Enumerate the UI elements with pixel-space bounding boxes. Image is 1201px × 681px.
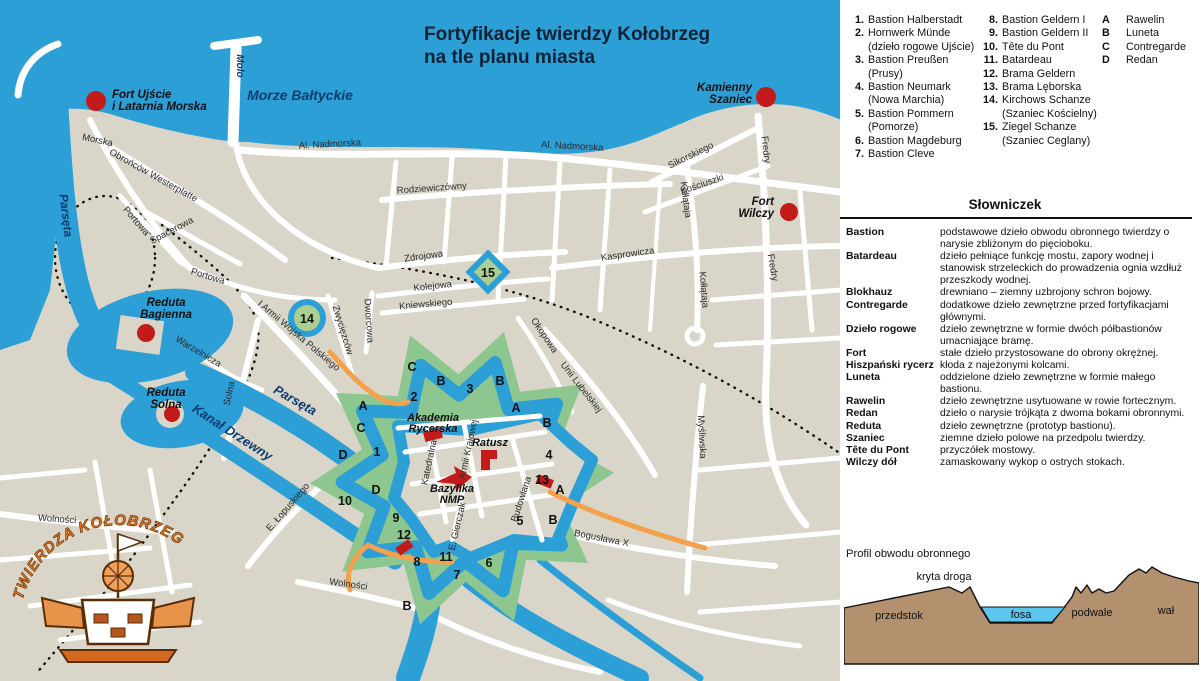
glossary-definition: drewniano – ziemny uzbrojony schron bojo…: [940, 287, 1196, 299]
legend-item-number: 8.: [980, 14, 1002, 27]
fort-red-dot: [756, 87, 776, 107]
legend-item: 9.Bastion Geldern II: [980, 27, 1098, 40]
glossary-definition: zamaskowany wykop o ostrych stokach.: [940, 457, 1196, 469]
legend-item-text: Bastion Cleve: [868, 148, 935, 161]
legend-item: 8.Bastion Geldern I: [980, 14, 1098, 27]
glossary-definition: dzieło zewnętrzne usytuowane w rowie for…: [940, 396, 1196, 408]
glossary-rule: [840, 217, 1192, 219]
legend-item-text: Kirchows Schanze(Szaniec Kościelny): [1002, 94, 1097, 121]
glossary-title: Słowniczek: [880, 197, 1130, 212]
profile-label-przedstok: przedstok: [875, 610, 923, 622]
legend-item-text: Bastion Preußen(Prusy): [868, 54, 948, 81]
glossary-term: Batardeau: [846, 251, 940, 287]
legend-item-number: 14.: [980, 94, 1002, 121]
marker-D: D: [338, 448, 347, 462]
marker-4: 4: [546, 448, 553, 462]
glossary-definition: przyczółek mostowy.: [940, 445, 1196, 457]
legend-item-text: Rawelin: [1126, 14, 1164, 27]
marker-B: B: [402, 599, 411, 613]
legend-item: 11.Batardeau: [980, 54, 1098, 67]
legend-column-3: ARawelinBLunetaCContregardeDRedan: [1102, 14, 1198, 68]
legend-item-number: 15.: [980, 121, 1002, 148]
city-site-label: Ratusz: [472, 437, 509, 449]
glossary-term: Szaniec: [846, 433, 940, 445]
legend-item: 12.Brama Geldern: [980, 68, 1098, 81]
marker-6: 6: [486, 556, 493, 570]
legend-item-number: D: [1102, 54, 1126, 67]
legend-item: 3.Bastion Preußen(Prusy): [846, 54, 978, 81]
rampart-profile-diagram: kryta droga przedstok fosa podwale wał: [844, 566, 1199, 678]
marker-A: A: [358, 399, 367, 413]
fort-site-label: Szaniec: [709, 94, 752, 106]
glossary-term: Blokhauz: [846, 287, 940, 299]
profile-label-podwale: podwale: [1072, 607, 1113, 619]
glossary-term: Redan: [846, 408, 940, 420]
marker-10: 10: [338, 494, 352, 508]
glossary-term: Luneta: [846, 372, 940, 396]
legend-item: DRedan: [1102, 54, 1198, 67]
legend-item-number: 3.: [846, 54, 868, 81]
fort-site-label: Reduta: [147, 387, 187, 399]
fort-site-label: i Latarnia Morska: [112, 101, 207, 113]
legend-item-text: Brama Geldern: [1002, 68, 1075, 81]
legend-item: BLuneta: [1102, 27, 1198, 40]
glossary-entry: Dzieło rogowedzieło zewnętrzne w formie …: [846, 324, 1196, 348]
legend-item-number: 4.: [846, 81, 868, 108]
legend-item: 4.Bastion Neumark(Nowa Marchia): [846, 81, 978, 108]
legend-item-text: Brama Lęborska: [1002, 81, 1081, 94]
marker-11: 11: [439, 550, 452, 564]
glossary-term: Contregarde: [846, 300, 940, 324]
glossary-entry: Tête du Pontprzyczółek mostowy.: [846, 445, 1196, 457]
glossary-term: Dzieło rogowe: [846, 324, 940, 348]
legend-item-text: Tête du Pont: [1002, 41, 1064, 54]
legend-item-text: Ziegel Schanze(Szaniec Ceglany): [1002, 121, 1090, 148]
marker-A: A: [511, 401, 520, 415]
legend-item-number: 11.: [980, 54, 1002, 67]
glossary-term: Wilczy dół: [846, 457, 940, 469]
legend-item: 15.Ziegel Schanze(Szaniec Ceglany): [980, 121, 1098, 148]
legend-item-number: 2.: [846, 27, 868, 54]
legend-item-number: 5.: [846, 108, 868, 135]
glossary-entry: Batardeaudzieło pełniące funkcję mostu, …: [846, 251, 1196, 287]
legend-column-2: 8.Bastion Geldern I9.Bastion Geldern II1…: [980, 14, 1098, 148]
profile-label-wal: wał: [1157, 605, 1175, 617]
glossary-entry: Blokhauzdrewniano – ziemny uzbrojony sch…: [846, 287, 1196, 299]
glossary-entry: Lunetaoddzielone dzieło zewnętrzne w for…: [846, 372, 1196, 396]
profile-title: Profil obwodu obronnego: [846, 548, 970, 560]
fort-site-label: Kamienny: [697, 82, 753, 94]
legend-item-number: B: [1102, 27, 1126, 40]
fort-red-dot: [137, 324, 155, 342]
glossary-term: Bastion: [846, 227, 940, 251]
glossary-definition: podstawowe dzieło obwodu obronnego twier…: [940, 227, 1196, 251]
glossary-term: Rawelin: [846, 396, 940, 408]
glossary-term: Hiszpański rycerz: [846, 360, 940, 372]
legend-column-1: 1.Bastion Halberstadt2.Hornwerk Münde(dz…: [846, 14, 978, 161]
glossary-definition: stałe dzieło przystosowane do obrony okr…: [940, 348, 1196, 360]
glossary-entry: Contregardedodatkowe dzieło zewnętrzne p…: [846, 300, 1196, 324]
glossary-entry: Rawelindzieło zewnętrzne usytuowane w ro…: [846, 396, 1196, 408]
glossary-entry: Redutadzieło zewnętrzne (prototyp bastio…: [846, 421, 1196, 433]
fort-site-label: Fort: [752, 196, 776, 208]
glossary-entry: Redandzieło o narysie trójkąta z dwoma b…: [846, 408, 1196, 420]
glossary-definition: ziemne dzieło polowe na przedpolu twierd…: [940, 433, 1196, 445]
glossary-definition: dzieło pełniące funkcję mostu, zapory wo…: [940, 251, 1196, 287]
marker-B: B: [436, 374, 445, 388]
water-label: Molo: [234, 54, 245, 77]
marker-1: 1: [374, 445, 381, 459]
legend-item-number: 6.: [846, 135, 868, 148]
marker-C: C: [407, 360, 416, 374]
marker-13: 13: [535, 473, 549, 487]
marker-8: 8: [414, 555, 421, 569]
marker-B: B: [548, 513, 557, 527]
fort-red-dot: [86, 91, 106, 111]
marker-D: D: [371, 483, 380, 497]
fort-site-label: Reduta: [147, 297, 187, 309]
legend-item: 13.Brama Lęborska: [980, 81, 1098, 94]
legend-item-number: 9.: [980, 27, 1002, 40]
fort-site-label: Fort Ujście: [112, 89, 172, 101]
legend-item: 6.Bastion Magdeburg: [846, 135, 978, 148]
legend-item-text: Bastion Geldern II: [1002, 27, 1088, 40]
city-site-label: Rycerska: [409, 423, 458, 435]
glossary-definition: dzieło zewnętrzne (prototyp bastionu).: [940, 421, 1196, 433]
glossary-entry: Wilczy dółzamaskowany wykop o ostrych st…: [846, 457, 1196, 469]
glossary-definition: kłoda z najeżonymi kolcami.: [940, 360, 1196, 372]
fort-site-label: Bagienna: [140, 309, 192, 321]
glossary-term: Reduta: [846, 421, 940, 433]
marker-7: 7: [454, 568, 461, 582]
glossary-entry: Szaniecziemne dzieło polowe na przedpolu…: [846, 433, 1196, 445]
map-title-line1: Fortyfikacje twierdzy Kołobrzeg: [424, 24, 710, 45]
marker-9: 9: [393, 511, 400, 525]
marker-C: C: [356, 421, 365, 435]
street-label: Myśliwska: [695, 415, 708, 460]
legend-item: 14.Kirchows Schanze(Szaniec Kościelny): [980, 94, 1098, 121]
legend-item-text: Batardeau: [1002, 54, 1052, 67]
kolobrzeg-fortress-map-page: Fort Ujściei Latarnia MorskaKamiennySzan…: [0, 0, 1201, 681]
glossary-list: Bastionpodstawowe dzieło obwodu obronneg…: [846, 227, 1196, 469]
marker-A: A: [555, 483, 564, 497]
marker-2: 2: [411, 390, 418, 404]
marker-B: B: [542, 416, 551, 430]
legend-item-text: Contregarde: [1126, 41, 1186, 54]
fort-site-label: Wilczy: [738, 208, 774, 220]
water-label: Morze Bałtyckie: [247, 87, 353, 103]
legend-item-text: Hornwerk Münde(dzieło rogowe Ujście): [868, 27, 974, 54]
legend-item-text: Bastion Neumark(Nowa Marchia): [868, 81, 951, 108]
legend-item: 7.Bastion Cleve: [846, 148, 978, 161]
marker-3: 3: [467, 382, 474, 396]
glossary-definition: dzieło zewnętrzne w formie dwóch półbast…: [940, 324, 1196, 348]
fort-site-label: Solna: [150, 399, 182, 411]
marker-15: 15: [481, 266, 495, 280]
legend-item-text: Redan: [1126, 54, 1158, 67]
glossary-entry: Fortstałe dzieło przystosowane do obrony…: [846, 348, 1196, 360]
legend-item-text: Bastion Halberstadt: [868, 14, 962, 27]
profile-label-fosa: fosa: [1011, 609, 1033, 621]
glossary-definition: oddzielone dzieło zewnętrzne w formie ma…: [940, 372, 1196, 396]
legend-item: 5.Bastion Pommern(Pomorze): [846, 108, 978, 135]
legend-item: 1.Bastion Halberstadt: [846, 14, 978, 27]
legend-item-number: 10.: [980, 41, 1002, 54]
legend-item-text: Luneta: [1126, 27, 1159, 40]
marker-12: 12: [397, 528, 411, 542]
glossary-term: Tête du Pont: [846, 445, 940, 457]
legend-item-text: Bastion Geldern I: [1002, 14, 1085, 27]
legend-item-text: Bastion Pommern(Pomorze): [868, 108, 954, 135]
marker-5: 5: [517, 514, 524, 528]
legend-item-number: 13.: [980, 81, 1002, 94]
marker-14: 14: [300, 312, 314, 326]
legend-item: 10.Tête du Pont: [980, 41, 1098, 54]
legend-item: 2.Hornwerk Münde(dzieło rogowe Ujście): [846, 27, 978, 54]
legend-item-number: 7.: [846, 148, 868, 161]
legend-item-number: 1.: [846, 14, 868, 27]
legend-item-text: Bastion Magdeburg: [868, 135, 962, 148]
glossary-definition: dodatkowe dzieło zewnętrzne przed fortyf…: [940, 300, 1196, 324]
legend-item-number: 12.: [980, 68, 1002, 81]
legend-item: ARawelin: [1102, 14, 1198, 27]
glossary-term: Fort: [846, 348, 940, 360]
fortress-map: Fort Ujściei Latarnia MorskaKamiennySzan…: [0, 0, 841, 681]
glossary-entry: Hiszpański rycerzkłoda z najeżonymi kolc…: [846, 360, 1196, 372]
map-title-line2: na tle planu miasta: [424, 47, 595, 68]
marker-B: B: [495, 374, 504, 388]
legend-item-number: C: [1102, 41, 1126, 54]
fort-red-dot: [780, 203, 798, 221]
legend-item-number: A: [1102, 14, 1126, 27]
glossary-entry: Bastionpodstawowe dzieło obwodu obronneg…: [846, 227, 1196, 251]
glossary-definition: dzieło o narysie trójkąta z dwoma bokami…: [940, 408, 1196, 420]
profile-label-kryta-droga: kryta droga: [916, 571, 972, 583]
legend-panel: 1.Bastion Halberstadt2.Hornwerk Münde(dz…: [840, 0, 1201, 681]
legend-item: CContregarde: [1102, 41, 1198, 54]
